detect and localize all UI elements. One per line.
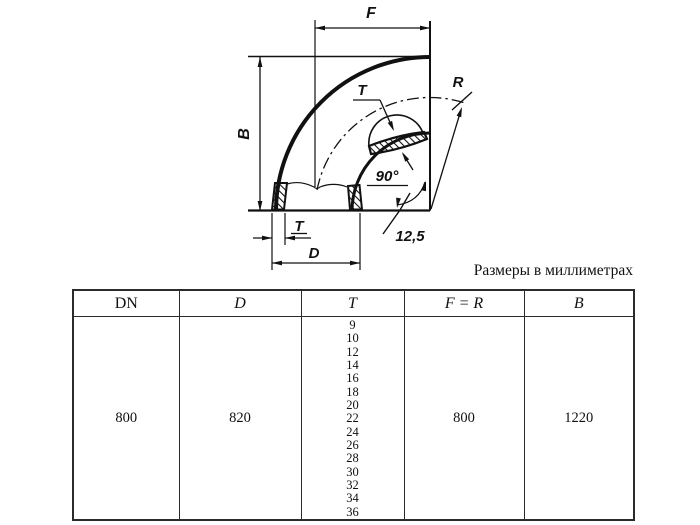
angle-label: 90° — [376, 168, 400, 185]
dim-T-bottom: T — [253, 213, 311, 245]
d-label: D — [309, 245, 320, 262]
angle-arc-arrow-lower — [396, 198, 401, 208]
t-arrow-left — [262, 236, 272, 241]
roughness-mark: 12,5 — [383, 193, 425, 245]
cell-f-r: 800 — [404, 317, 524, 521]
r-tick — [452, 92, 472, 110]
col-header-t: T — [301, 290, 404, 317]
cell-b: 1220 — [524, 317, 634, 521]
col-header-f-r: F = R — [404, 290, 524, 317]
f-arrow-right — [420, 26, 430, 31]
r-arrow-head — [457, 107, 462, 117]
angle-pointer-arrow — [402, 152, 409, 162]
upper-wall-crescent-section — [369, 132, 427, 154]
header-row: DN D T F = R B — [73, 290, 634, 317]
cell-d: 820 — [179, 317, 301, 521]
dim-R: R — [431, 74, 472, 209]
dim-B: B — [236, 57, 262, 211]
d-arrow-right — [350, 261, 360, 266]
t-bottom-label: T — [294, 218, 305, 235]
left-wall-section — [272, 183, 287, 210]
col-header-b: B — [524, 290, 634, 317]
cell-dn: 800 — [73, 317, 179, 521]
d-arrow-left — [272, 261, 282, 266]
angle-annotation: 90° — [367, 152, 426, 208]
elbow-technical-drawing: F B D T — [0, 0, 700, 285]
dim-T-top: T — [353, 82, 394, 131]
right-wall-section — [348, 185, 362, 210]
section-walls — [272, 115, 427, 210]
angle-arc-arrow-upper — [421, 181, 426, 191]
dimensions-table: DN D T F = R B 800 820 9 10 12 14 16 18 … — [72, 289, 635, 521]
r-arrow-line — [431, 110, 461, 209]
page: F B D T — [0, 0, 700, 525]
f-arrow-left — [315, 26, 325, 31]
t-top-label: T — [357, 82, 368, 99]
roughness-label: 12,5 — [395, 228, 425, 245]
f-label: F — [366, 5, 377, 22]
col-header-dn: DN — [73, 290, 179, 317]
table-row: 800 820 9 10 12 14 16 18 20 22 24 26 28 … — [73, 317, 634, 521]
b-arrow-top — [258, 57, 263, 67]
col-header-d: D — [179, 290, 301, 317]
units-caption: Размеры в миллиметрах — [474, 262, 633, 280]
cell-t-values: 9 10 12 14 16 18 20 22 24 26 28 30 32 34… — [301, 317, 404, 521]
t-arrow-right — [285, 236, 295, 241]
t-top-arrow — [388, 121, 394, 131]
r-label: R — [453, 74, 464, 91]
b-label: B — [236, 128, 253, 140]
